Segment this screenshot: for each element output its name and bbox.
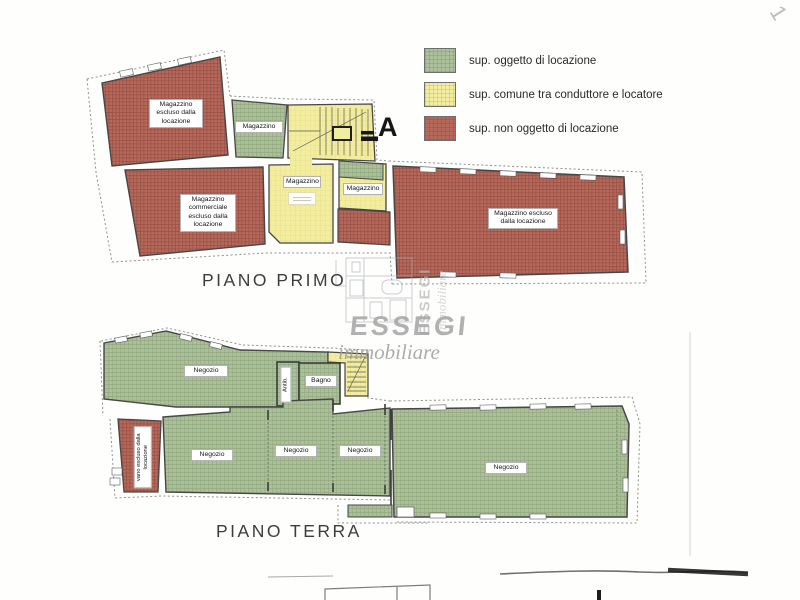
room-label-bathroom: Bagno — [305, 375, 337, 387]
legend: sup. oggetto di locazione sup. comune tr… — [424, 48, 663, 150]
room-label-shop-left: Negozio — [191, 449, 233, 461]
legend-item-leased: sup. oggetto di locazione — [424, 48, 663, 73]
micro-annotation — [288, 192, 316, 205]
elevator-shaft — [333, 127, 351, 140]
title-block-table — [325, 585, 430, 600]
room-label-storage-common-right: Magazzino — [343, 183, 383, 195]
room-label-storage-excluded-east: Magazzino escluso dalla locazione — [488, 208, 558, 229]
legend-swatch-yellow — [424, 82, 456, 107]
legend-swatch-red — [424, 116, 456, 141]
legend-label: sup. oggetto di locazione — [469, 55, 596, 67]
room-label-storage-commercial: Magazzino commerciale escluso dalla loca… — [180, 194, 236, 232]
ink-tick — [597, 590, 601, 600]
room-label-anteroom: Antib. — [280, 367, 291, 403]
shaft-steps — [110, 468, 122, 485]
room-label-storage-green: Magazzino — [235, 121, 283, 133]
scanned-floorplan-page: { "page": { "corner_mark": "1" }, "legen… — [0, 0, 800, 600]
legend-item-not-leased: sup. non oggetto di locazione — [424, 116, 663, 141]
green-strip-first-floor — [339, 161, 383, 180]
room-shape-red-connector — [338, 209, 390, 245]
room-label-storage-common-main: Magazzino — [283, 176, 321, 188]
room-label-shop-center: Negozio — [275, 445, 317, 457]
ground-floor-plan — [100, 328, 640, 523]
floorplan-drawing — [0, 0, 800, 600]
legend-item-common: sup. comune tra conduttore e locatore — [424, 82, 663, 107]
room-label-shop-east: Negozio — [485, 462, 527, 474]
room-label-shop-top: Negozio — [184, 365, 228, 377]
room-label-shop-right: Negozio — [339, 445, 381, 457]
room-label-shaft-excluded: vano escluso dalla locazione — [134, 426, 152, 488]
appendix-green-rect — [348, 505, 392, 517]
legend-label: sup. comune tra conduttore e locatore — [469, 89, 663, 101]
first-floor-title: PIANO PRIMO — [202, 270, 346, 291]
ground-floor-title: PIANO TERRA — [216, 521, 362, 542]
section-marker-a: A — [378, 112, 398, 143]
legend-swatch-green — [424, 48, 456, 73]
room-label-storage-excluded-nw: Magazzino escluso dalla locazione — [149, 99, 203, 128]
legend-label: sup. non oggetto di locazione — [469, 123, 619, 135]
appendix-white-rect — [397, 507, 414, 517]
